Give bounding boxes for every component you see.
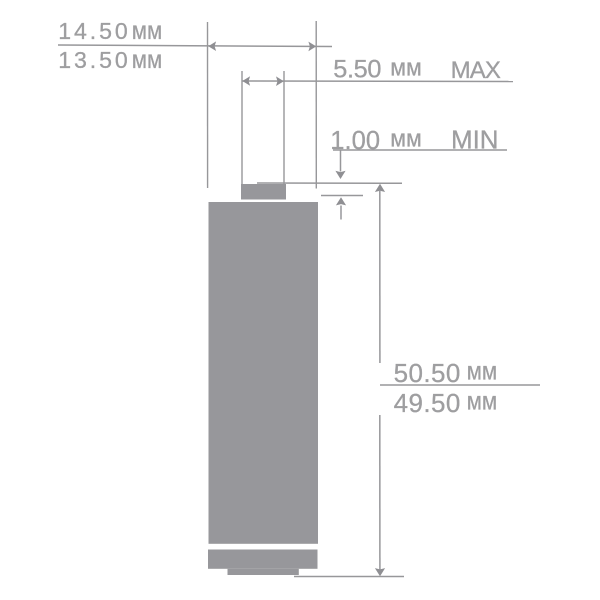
svg-text:MAX: MAX	[451, 57, 501, 84]
svg-text:49.50: 49.50	[394, 388, 461, 418]
svg-text:14.50: 14.50	[58, 18, 128, 44]
svg-text:мм: мм	[132, 15, 163, 45]
svg-text:1.00: 1.00	[330, 127, 380, 155]
svg-text:13.50: 13.50	[58, 47, 128, 73]
svg-text:мм: мм	[132, 44, 163, 74]
svg-text:50.50: 50.50	[394, 358, 461, 388]
svg-text:мм: мм	[467, 385, 498, 415]
svg-text:мм: мм	[390, 126, 422, 153]
svg-text:5.50: 5.50	[333, 56, 381, 84]
svg-text:мм: мм	[390, 54, 422, 81]
svg-text:мм: мм	[467, 355, 498, 385]
